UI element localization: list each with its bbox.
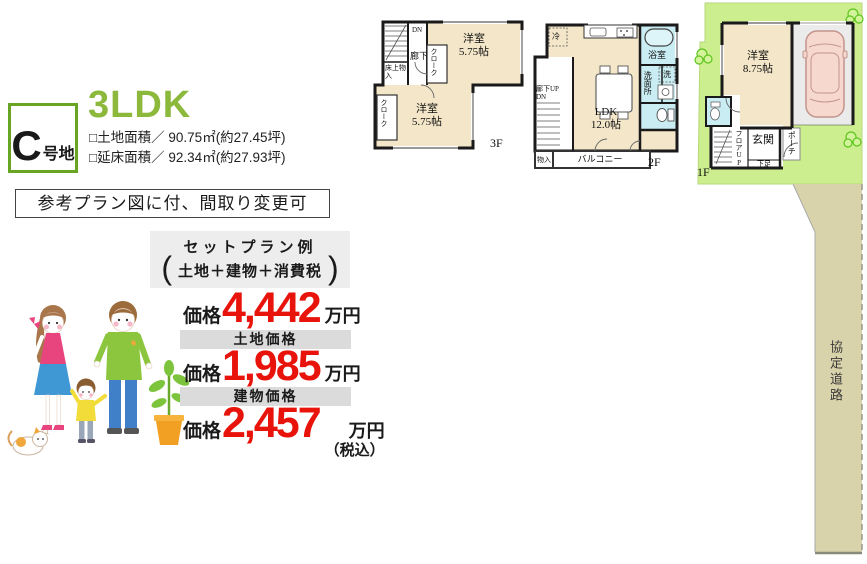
ldk-label: LDK 12.0帖 [578, 106, 634, 131]
washroom-label: 洗面所 [643, 71, 652, 95]
price-label: 価格 [183, 365, 221, 384]
floor-tag-3f: 3F [490, 137, 503, 151]
price-unit: 万円 [325, 307, 361, 325]
stairs-dn-label: DN [412, 26, 422, 34]
dad-figure [94, 301, 152, 434]
plot-number-box: C 号地 [8, 103, 78, 173]
vanity-icon [658, 85, 673, 99]
closet-label: クローク [380, 99, 388, 127]
entrance-label: 玄関 [752, 134, 774, 147]
price-label: 価格 [183, 307, 221, 326]
plot-letter: C [11, 128, 41, 164]
balcony-label: バルコニー [560, 154, 640, 164]
shoe-storage-label: 下足 [757, 160, 771, 168]
layout-type: 3LDK [88, 86, 191, 124]
paren-close: ) [328, 256, 339, 282]
road-label: 協定道路 [827, 340, 842, 404]
building-price-value: 2,457 [222, 402, 320, 445]
land-area-text: □土地面積／ 90.75㎡(約27.45坪) [89, 126, 285, 146]
room-size: 5.75帖 [442, 46, 506, 59]
room-label-3f-top: 洋室 5.75帖 [442, 33, 506, 58]
price-unit: 万円 [349, 422, 385, 440]
price-unit: 万円 [325, 365, 361, 383]
building-price-row: 価格 2,457 万円 （税込） [183, 402, 385, 458]
set-plan-content: 土地＋建物＋消費税 [178, 260, 322, 281]
mom-figure [29, 305, 73, 430]
set-plan-box: セットプラン例 ( 土地＋建物＋消費税 ) [150, 231, 350, 288]
floor-area-text: □延床面積／ 92.34㎡(約27.93坪) [89, 146, 285, 166]
room-name: LDK [578, 106, 634, 119]
bathtub-icon [645, 29, 673, 46]
flyer-canvas: C 号地 3LDK □土地面積／ 90.75㎡(約27.45坪) □延床面積／ … [0, 0, 867, 564]
room-name: 洋室 [442, 33, 506, 46]
set-plan-title: セットプラン例 [150, 231, 350, 257]
room-size: 12.0帖 [578, 119, 634, 132]
land-price-row: 価格 1,985 万円 [183, 345, 361, 388]
price-label: 価格 [183, 422, 221, 441]
land-price-value: 1,985 [222, 345, 320, 388]
plan-note: 参考プラン図に付、間取り変更可 [15, 189, 330, 218]
room-size: 8.75帖 [727, 63, 789, 76]
plot-suffix: 号地 [43, 140, 75, 164]
stairs-up-label: フロアUP [735, 130, 743, 167]
car-icon [803, 31, 847, 117]
child-figure [72, 379, 105, 444]
toilet-icon [711, 102, 721, 120]
cat-icon [9, 426, 49, 455]
room-label-3f-bottom: 洋室 5.75帖 [396, 103, 458, 128]
stairs-updn-label: 廊下UP DN [536, 85, 566, 101]
floor-storage-label: 床上物入 [385, 64, 407, 80]
room-size: 5.75帖 [396, 116, 458, 129]
floor-tag-1f: 1F [697, 166, 710, 180]
bath-label: 浴室 [648, 50, 666, 60]
closet-label: クローク [430, 48, 438, 76]
tax-note: （税込） [325, 443, 385, 458]
room-name: 洋室 [396, 103, 458, 116]
fridge-label: 冷 [552, 32, 560, 41]
washer-label: 洗 [663, 70, 671, 79]
total-price-row: 価格 4,442 万円 [183, 287, 361, 330]
paren-open: ( [161, 256, 172, 282]
storage-label: 物入 [537, 156, 551, 164]
floor-tag-2f: 2F [648, 156, 661, 170]
total-price-value: 4,442 [222, 287, 320, 330]
room-label-1f: 洋室 8.75帖 [727, 50, 789, 75]
room-name: 洋室 [727, 50, 789, 63]
porch-label: ポーチ [787, 131, 796, 155]
toilet-2f-icon [657, 109, 674, 122]
family-illustration [9, 301, 192, 455]
hallway-label: 廊下 [410, 51, 428, 61]
